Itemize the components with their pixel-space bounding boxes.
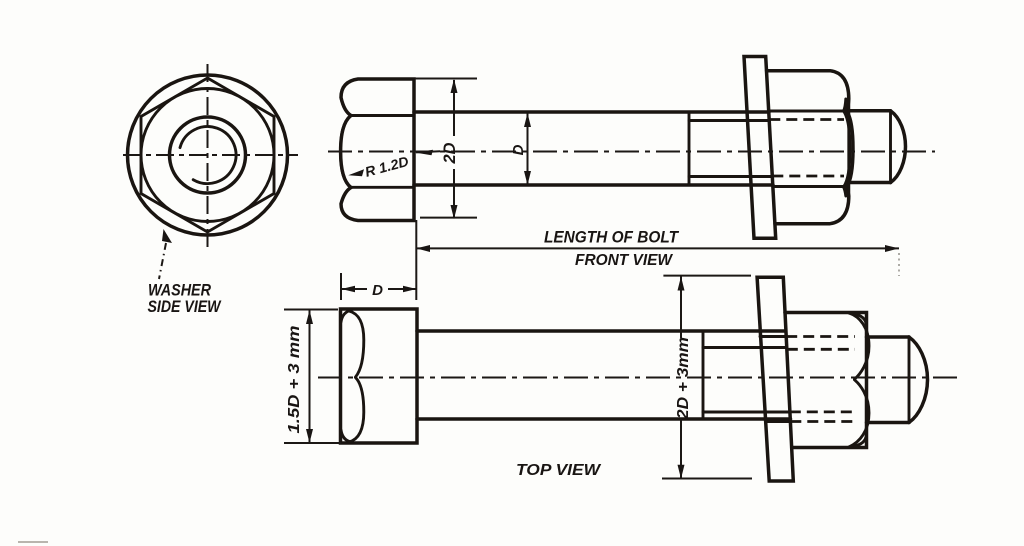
svg-text:TOP VIEW: TOP VIEW — [516, 462, 602, 479]
svg-text:FRONT VIEW: FRONT VIEW — [575, 252, 674, 269]
svg-text:D: D — [510, 144, 527, 155]
svg-text:1.5D + 3 mm: 1.5D + 3 mm — [286, 325, 303, 433]
svg-text:2D + 3mm: 2D + 3mm — [675, 337, 692, 420]
svg-text:R 1.2D: R 1.2D — [363, 153, 410, 180]
svg-text:D: D — [372, 282, 383, 299]
svg-text:LENGTH OF BOLT: LENGTH OF BOLT — [544, 229, 680, 247]
svg-text:WASHER: WASHER — [148, 282, 211, 300]
svg-text:2D: 2D — [441, 142, 459, 164]
svg-text:SIDE VIEW: SIDE VIEW — [148, 298, 222, 316]
